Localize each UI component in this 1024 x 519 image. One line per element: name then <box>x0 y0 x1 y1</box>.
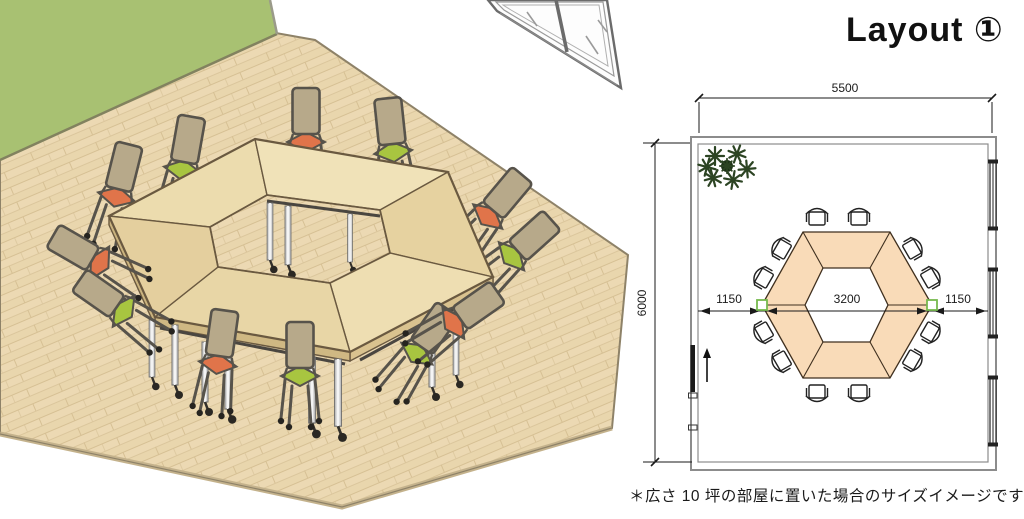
table-end-marker-left <box>757 300 767 310</box>
chair-plan <box>806 209 828 226</box>
right-clearance-label: 1150 <box>945 292 971 306</box>
window-plan-icon <box>989 268 998 338</box>
right-wall-windows <box>989 160 998 446</box>
chair-plan <box>848 209 870 226</box>
page-title: Layout ① <box>846 10 1004 50</box>
isometric-room-view <box>0 0 628 507</box>
room-height-label: 6000 <box>635 289 649 316</box>
table-end-marker-right <box>927 300 937 310</box>
window-plan-icon <box>989 160 998 230</box>
chair-plan <box>919 264 944 291</box>
table-span-label: 3200 <box>834 292 861 306</box>
layout-illustration: 5500 6000 <box>0 0 1024 519</box>
dimension-mid-line: 1150 3200 1150 <box>698 292 988 315</box>
left-clearance-label: 1150 <box>716 292 742 306</box>
size-footnote: ＊広さ 10 坪の部屋に置いた場合のサイズイメージです <box>629 484 1024 506</box>
dimension-room-width: 5500 <box>695 81 996 133</box>
window-plan-icon <box>989 376 998 446</box>
chair-plan <box>806 385 828 402</box>
floor-plan: 5500 6000 <box>635 81 998 470</box>
room-width-label: 5500 <box>832 81 859 95</box>
chair-plan <box>919 319 944 346</box>
plant-icon <box>696 142 760 190</box>
chair-plan <box>848 385 870 402</box>
dimension-room-height: 6000 <box>635 139 692 466</box>
window-icon <box>488 0 621 88</box>
